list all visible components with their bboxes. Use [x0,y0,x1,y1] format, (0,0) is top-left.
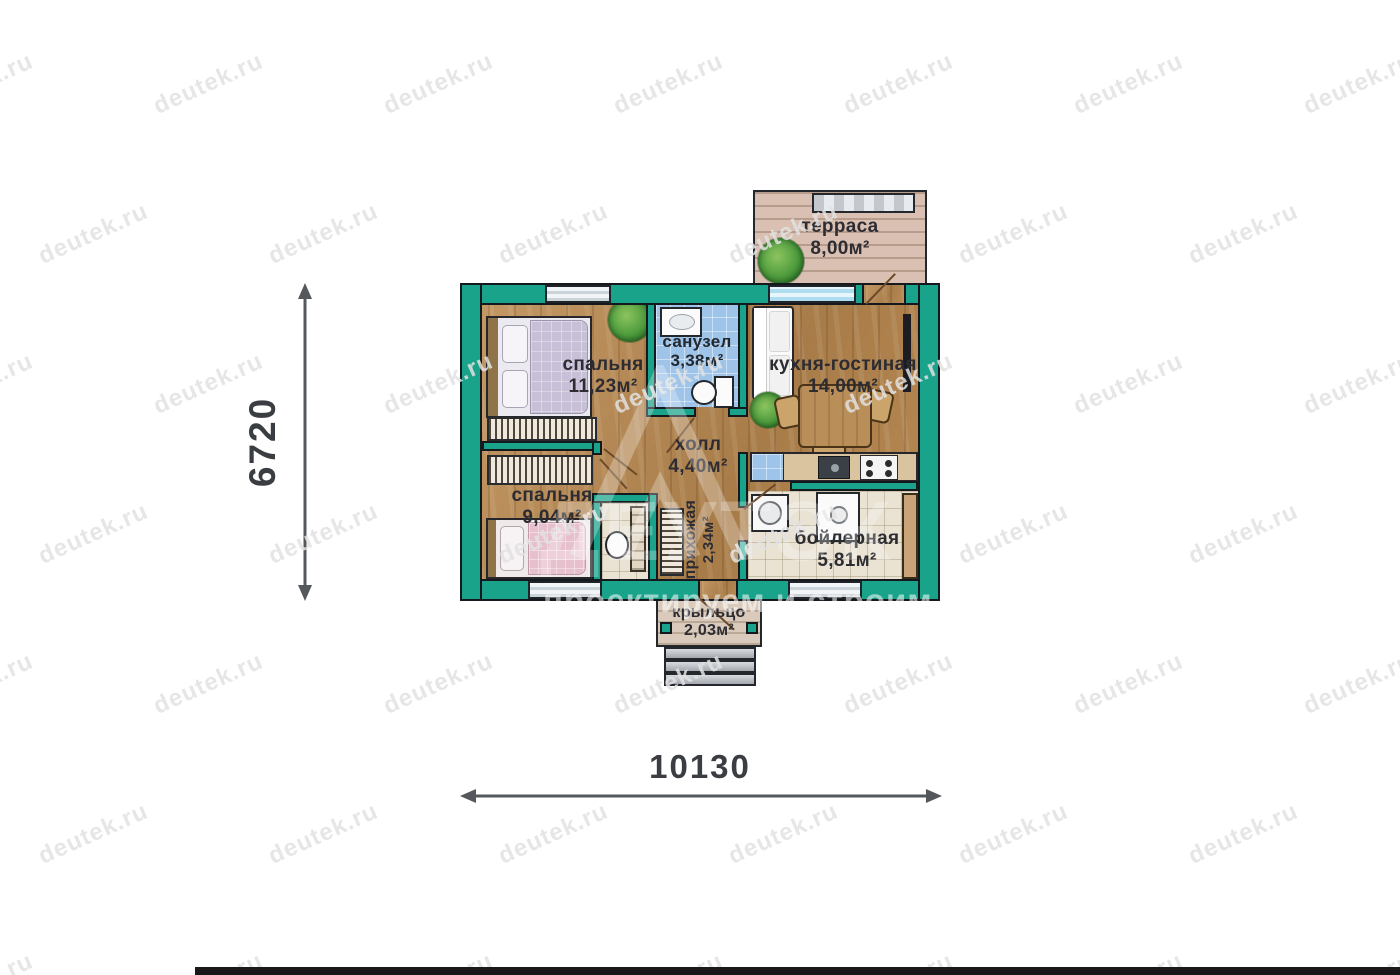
terrace-bench [812,193,915,213]
site-watermark: deutek.ru [149,647,267,720]
sink-faucet [831,464,839,472]
counter-blue-section [752,454,784,480]
width-dimension-arrow [458,783,944,809]
porch-step [664,647,756,660]
site-watermark: deutek.ru [379,47,497,120]
bedroom1-window [545,285,611,303]
boiler-label: бойлерная 5,81м² [782,528,912,571]
floor-plan-page: терраса 8,00м² [0,0,1400,975]
site-watermark: deutek.ru [264,497,382,570]
sofa-cushion [769,311,790,352]
porch-step [664,673,756,686]
room-name: бойлерная [782,528,912,550]
burner [885,470,892,477]
washer-door [758,501,782,525]
room-name: терраса [772,216,908,238]
site-watermark: deutek.ru [1299,347,1400,420]
site-watermark: deutek.ru [0,47,38,120]
burner [866,470,873,477]
kitchen-terrace-window [768,285,856,303]
site-watermark: deutek.ru [149,47,267,120]
site-watermark: deutek.ru [379,647,497,720]
site-watermark: deutek.ru [264,197,382,270]
height-dimension-label: 6720 [228,392,298,492]
wall-left [460,283,482,601]
bottom-bar [195,967,1400,975]
counter-stove [860,455,898,480]
site-watermark: deutek.ru [1184,497,1302,570]
site-watermark: deutek.ru [954,797,1072,870]
room-area: 8,00м² [772,238,908,260]
wall-kitchen-boiler [790,481,918,491]
terrace-label: терраса 8,00м² [772,216,908,259]
site-watermark: deutek.ru [34,497,152,570]
burner [866,460,873,467]
site-watermark: deutek.ru [954,497,1072,570]
site-watermark: deutek.ru [839,47,957,120]
room-area: 14,00м² [768,376,918,398]
brand-logo-watermark [565,365,755,565]
site-watermark: deutek.ru [34,197,152,270]
porch-label: крыльцо 2,03м² [660,604,758,640]
room-name: санузел [650,332,744,351]
porch-step [664,660,756,673]
room-area: 5,81м² [782,550,912,572]
bed-pillow [502,325,528,363]
bed-headboard [488,318,498,416]
site-watermark: deutek.ru [1299,47,1400,120]
room-name: крыльцо [660,604,758,622]
site-watermark: deutek.ru [609,47,727,120]
site-watermark: deutek.ru [839,647,957,720]
site-watermark: deutek.ru [1069,347,1187,420]
sink-basin [669,314,695,330]
site-watermark: deutek.ru [264,797,382,870]
sofa-back [754,308,767,398]
bedroom2-window [528,581,602,599]
site-watermark: deutek.ru [0,347,38,420]
site-watermark: deutek.ru [0,647,38,720]
kitchen-label: кухня-гостиная 14,00м² [768,354,918,397]
boiler-dial [830,506,848,524]
site-watermark: deutek.ru [34,797,152,870]
site-watermark: deutek.ru [494,197,612,270]
height-value: 6720 [242,397,284,487]
site-watermark: deutek.ru [1184,797,1302,870]
room-name: кухня-гостиная [768,354,918,376]
site-watermark: deutek.ru [1184,197,1302,270]
bed-headboard [488,520,496,577]
wall-right [918,283,940,601]
bed-pillow [502,370,528,408]
counter-sink [818,456,850,479]
room-area: 2,03м² [660,622,758,640]
boiler-window [788,581,862,599]
site-watermark: deutek.ru [1299,647,1400,720]
width-dimension-label: 10130 [630,748,770,786]
bed-pillow [500,526,524,571]
site-watermark: deutek.ru [1069,47,1187,120]
site-watermark: deutek.ru [954,197,1072,270]
burner [885,460,892,467]
site-watermark: deutek.ru [0,947,38,975]
site-watermark: deutek.ru [1069,647,1187,720]
